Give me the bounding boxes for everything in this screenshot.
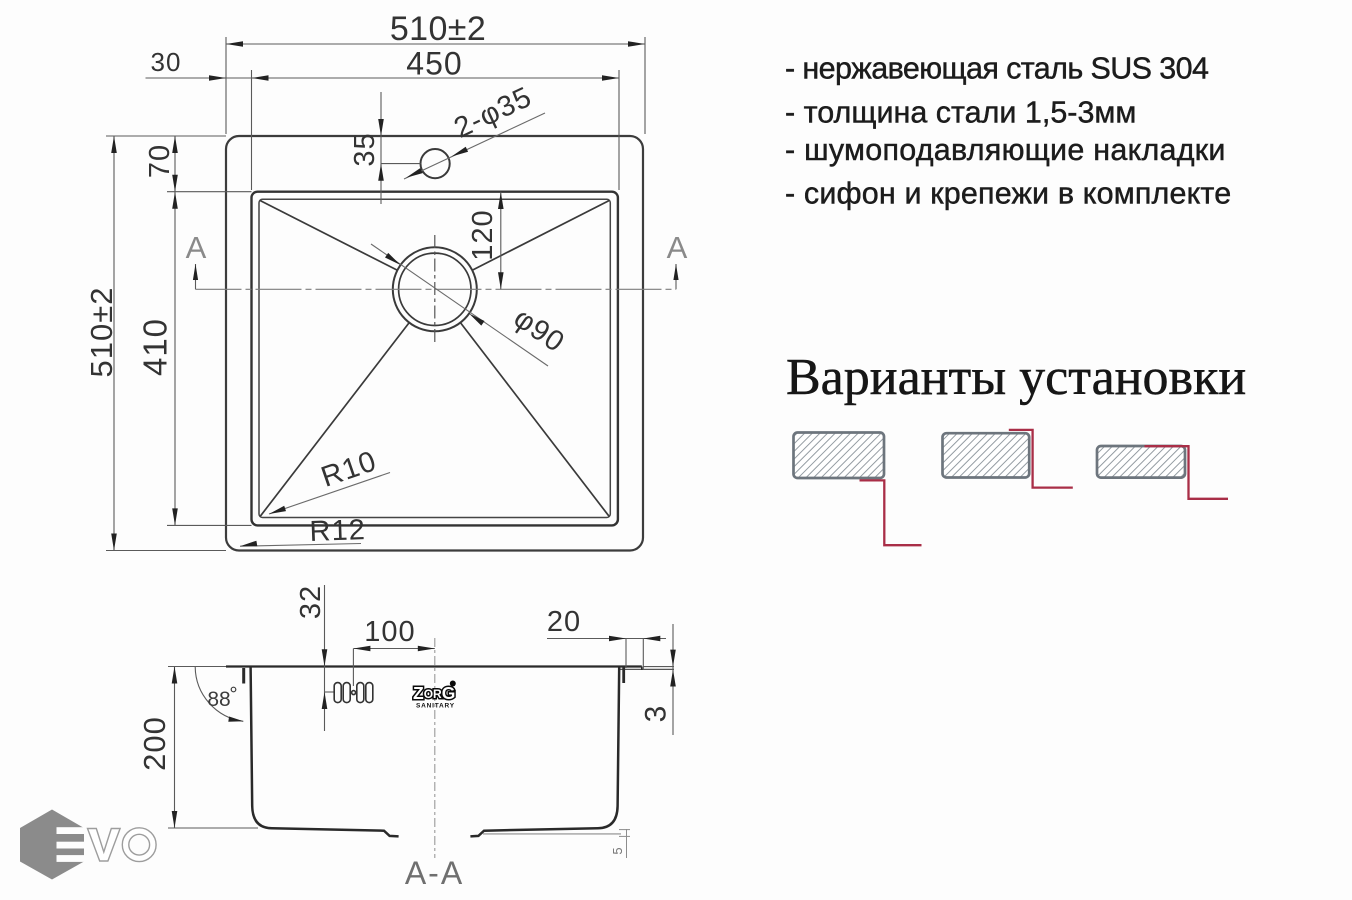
svg-text:R12: R12	[309, 514, 366, 548]
svg-text:410: 410	[137, 318, 174, 376]
svg-text:3: 3	[640, 705, 673, 723]
svg-text:- сифон и крепежи в комплекте: - сифон и крепежи в комплекте	[785, 177, 1231, 211]
svg-text:30: 30	[151, 47, 182, 77]
svg-text:450: 450	[406, 46, 462, 82]
svg-text:- шумоподавляющие накладки: - шумоподавляющие накладки	[785, 133, 1226, 167]
svg-text:70: 70	[144, 144, 176, 178]
svg-text:5: 5	[610, 847, 625, 854]
svg-text:510±2: 510±2	[84, 287, 119, 378]
svg-text:120: 120	[467, 209, 499, 260]
svg-text:88: 88	[207, 688, 230, 711]
svg-text:SANITARY: SANITARY	[416, 703, 455, 710]
svg-text:A: A	[186, 230, 207, 265]
svg-text:- толщина стали 1,5-3мм: - толщина стали 1,5-3мм	[785, 96, 1136, 130]
svg-text:35: 35	[349, 132, 381, 166]
svg-text:- нержавеющая сталь SUS 304: - нержавеющая сталь SUS 304	[785, 52, 1209, 86]
svg-text:20: 20	[547, 606, 581, 638]
svg-text:A-A: A-A	[405, 855, 464, 891]
svg-text:A: A	[667, 230, 688, 265]
svg-text:510±2: 510±2	[390, 10, 486, 48]
svg-text:Варианты установки: Варианты установки	[786, 349, 1246, 406]
svg-text:100: 100	[364, 616, 415, 648]
svg-text:32: 32	[295, 585, 327, 619]
svg-text:200: 200	[137, 716, 172, 771]
